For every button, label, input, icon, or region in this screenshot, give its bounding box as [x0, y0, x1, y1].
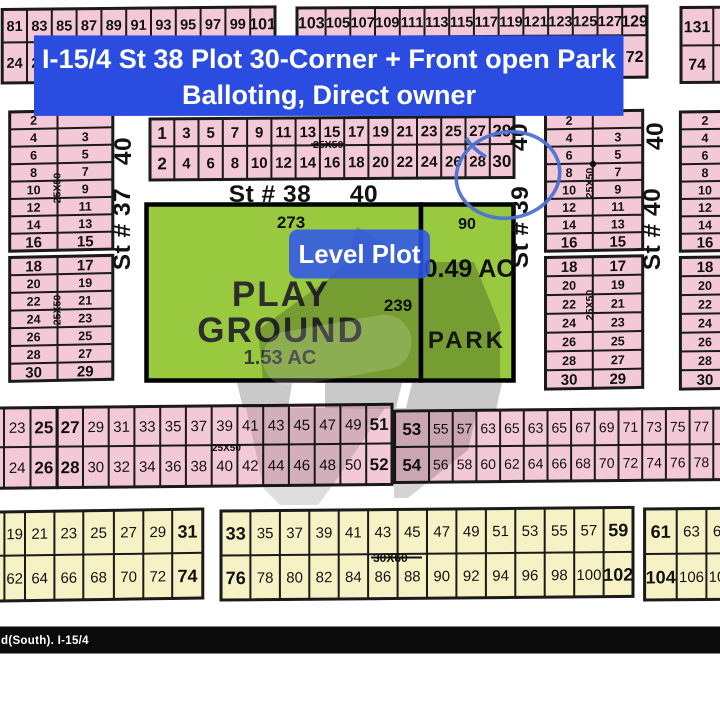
svg-text:4: 4	[566, 131, 573, 145]
svg-text:25X50: 25X50	[584, 290, 596, 321]
svg-text:35: 35	[257, 525, 274, 542]
svg-text:93: 93	[155, 18, 171, 34]
svg-text:31: 31	[113, 419, 130, 436]
svg-text:90: 90	[458, 216, 476, 233]
svg-text:22: 22	[396, 154, 413, 171]
svg-text:90: 90	[433, 568, 450, 585]
svg-text:20: 20	[698, 279, 712, 293]
svg-text:69: 69	[599, 419, 615, 435]
svg-text:39: 39	[216, 418, 233, 435]
svg-text:30: 30	[492, 152, 511, 171]
svg-text:d(South). I-15/4: d(South). I-15/4	[1, 635, 89, 647]
svg-text:24: 24	[7, 56, 23, 72]
svg-text:94: 94	[492, 568, 509, 585]
svg-text:20: 20	[562, 279, 576, 293]
svg-text:18: 18	[25, 258, 42, 275]
svg-text:65: 65	[504, 420, 520, 436]
svg-text:25: 25	[611, 334, 625, 348]
svg-text:77: 77	[694, 418, 710, 434]
svg-text:14: 14	[27, 218, 41, 232]
svg-text:53: 53	[522, 523, 539, 540]
svg-text:76: 76	[226, 568, 246, 588]
svg-text:22: 22	[562, 297, 576, 311]
svg-text:6: 6	[30, 148, 37, 162]
svg-text:19: 19	[6, 526, 23, 543]
svg-text:129: 129	[621, 13, 648, 30]
svg-text:115: 115	[450, 15, 473, 31]
svg-text:9: 9	[614, 182, 621, 196]
svg-text:26: 26	[27, 330, 41, 344]
svg-text:109: 109	[375, 15, 399, 31]
svg-text:38: 38	[190, 458, 207, 475]
svg-text:23: 23	[60, 525, 77, 542]
svg-text:29: 29	[87, 419, 104, 436]
svg-text:18: 18	[561, 259, 578, 276]
svg-text:8: 8	[566, 166, 573, 180]
svg-text:91: 91	[131, 18, 147, 34]
svg-text:63: 63	[528, 420, 544, 436]
svg-text:25: 25	[445, 123, 462, 140]
svg-text:131: 131	[684, 19, 711, 36]
svg-text:47: 47	[433, 524, 450, 541]
svg-text:21: 21	[78, 293, 92, 307]
svg-text:6: 6	[207, 155, 215, 172]
svg-text:25X50: 25X50	[52, 173, 64, 204]
svg-text:33: 33	[226, 523, 246, 543]
svg-text:28: 28	[27, 348, 41, 362]
svg-text:113: 113	[425, 15, 448, 31]
svg-text:73: 73	[646, 419, 662, 435]
svg-text:6: 6	[702, 149, 709, 163]
svg-text:85: 85	[56, 19, 72, 35]
svg-text:28: 28	[562, 354, 576, 368]
svg-text:19: 19	[611, 278, 625, 292]
svg-text:34: 34	[139, 459, 156, 476]
svg-text:15: 15	[77, 233, 94, 250]
svg-text:61: 61	[651, 522, 671, 542]
svg-text:25X50: 25X50	[584, 168, 596, 199]
svg-text:273: 273	[277, 213, 305, 232]
svg-text:19: 19	[372, 124, 389, 141]
svg-text:17: 17	[77, 257, 94, 274]
svg-text:25: 25	[34, 418, 53, 437]
svg-text:24: 24	[421, 154, 438, 171]
svg-text:17: 17	[609, 258, 626, 275]
svg-text:8: 8	[30, 166, 37, 180]
svg-text:6: 6	[566, 149, 573, 163]
svg-text:23: 23	[421, 123, 438, 140]
svg-text:66: 66	[60, 570, 77, 587]
svg-text:68: 68	[90, 569, 107, 586]
svg-text:30: 30	[561, 372, 578, 389]
svg-text:36: 36	[165, 458, 182, 475]
svg-text:22: 22	[698, 298, 712, 312]
svg-text:18: 18	[348, 154, 365, 171]
svg-text:30: 30	[25, 364, 42, 381]
svg-text:25: 25	[78, 329, 92, 343]
svg-text:98: 98	[551, 567, 568, 584]
svg-text:12: 12	[562, 201, 576, 215]
svg-text:65: 65	[713, 523, 720, 540]
svg-text:1: 1	[157, 124, 166, 143]
svg-text:29: 29	[609, 371, 626, 388]
svg-text:12: 12	[698, 201, 712, 215]
svg-text:23: 23	[78, 311, 92, 325]
svg-text:40: 40	[216, 458, 233, 475]
svg-text:40: 40	[506, 123, 533, 151]
svg-text:21: 21	[611, 297, 625, 311]
svg-text:24: 24	[27, 312, 41, 326]
svg-text:96: 96	[522, 567, 539, 584]
svg-text:123: 123	[548, 14, 572, 30]
svg-text:28: 28	[61, 458, 80, 477]
svg-text:28: 28	[698, 354, 712, 368]
svg-text:102: 102	[603, 565, 633, 585]
svg-text:30: 30	[87, 459, 104, 476]
svg-text:14: 14	[299, 155, 316, 172]
svg-text:Level Plot: Level Plot	[299, 239, 421, 269]
svg-text:St # 37: St # 37	[109, 188, 136, 271]
svg-text:4: 4	[702, 131, 709, 145]
svg-text:70: 70	[599, 455, 615, 471]
svg-text:84: 84	[345, 569, 362, 586]
svg-text:68: 68	[575, 455, 591, 471]
svg-text:25X50: 25X50	[212, 443, 241, 454]
svg-text:67: 67	[575, 419, 591, 435]
svg-text:105: 105	[326, 15, 350, 31]
svg-text:40: 40	[110, 137, 137, 165]
svg-text:4: 4	[182, 155, 191, 172]
svg-text:16: 16	[561, 234, 578, 251]
svg-text:21: 21	[396, 123, 413, 140]
svg-text:74: 74	[688, 57, 706, 74]
svg-text:13: 13	[611, 217, 625, 231]
svg-text:25X50: 25X50	[313, 139, 344, 151]
svg-text:75: 75	[670, 418, 686, 434]
svg-text:Balloting, Direct owner: Balloting, Direct owner	[182, 80, 477, 110]
svg-text:30: 30	[697, 372, 714, 389]
svg-text:2: 2	[157, 154, 166, 173]
svg-text:33: 33	[139, 419, 156, 436]
svg-text:14: 14	[698, 218, 712, 232]
svg-text:72: 72	[623, 455, 639, 471]
svg-text:26: 26	[562, 335, 576, 349]
svg-text:111: 111	[401, 15, 424, 31]
svg-text:58: 58	[457, 456, 473, 472]
svg-text:125: 125	[573, 14, 597, 30]
svg-text:80: 80	[286, 569, 303, 586]
svg-text:25X50: 25X50	[52, 295, 64, 326]
svg-text:22: 22	[27, 295, 41, 309]
svg-text:I-15/4 St 38 Plot 30-Corner +: I-15/4 St 38 Plot 30-Corner + Front open…	[42, 44, 617, 74]
svg-text:64: 64	[31, 570, 48, 587]
svg-text:45: 45	[404, 524, 421, 541]
svg-text:117: 117	[475, 15, 498, 31]
svg-text:5: 5	[614, 148, 621, 162]
svg-text:20: 20	[27, 277, 41, 291]
svg-text:103: 103	[298, 15, 325, 32]
svg-text:72: 72	[626, 49, 644, 66]
svg-text:86: 86	[375, 569, 392, 586]
svg-text:17: 17	[348, 124, 365, 141]
svg-text:72: 72	[149, 568, 166, 585]
svg-text:23: 23	[9, 420, 26, 437]
svg-text:49: 49	[463, 523, 480, 540]
svg-text:3: 3	[614, 130, 621, 144]
svg-text:27: 27	[611, 353, 625, 367]
svg-text:62: 62	[6, 570, 23, 587]
svg-text:26: 26	[698, 335, 712, 349]
svg-text:29: 29	[77, 363, 94, 380]
svg-text:31: 31	[177, 521, 197, 541]
svg-text:62: 62	[504, 456, 520, 472]
svg-text:92: 92	[463, 568, 480, 585]
svg-text:119: 119	[499, 15, 522, 31]
svg-text:63: 63	[683, 523, 700, 540]
svg-text:39: 39	[316, 525, 333, 542]
svg-text:2: 2	[702, 114, 709, 128]
svg-text:18: 18	[697, 259, 714, 276]
svg-text:66: 66	[552, 455, 568, 471]
svg-text:74: 74	[177, 566, 197, 586]
svg-text:20: 20	[372, 154, 389, 171]
svg-text:15: 15	[609, 233, 626, 250]
svg-text:89: 89	[106, 18, 122, 34]
svg-text:101: 101	[249, 16, 276, 33]
svg-text:95: 95	[180, 17, 196, 33]
svg-text:13: 13	[78, 217, 92, 231]
svg-text:4: 4	[30, 131, 37, 145]
svg-text:10: 10	[698, 183, 712, 197]
svg-text:121: 121	[524, 14, 548, 30]
svg-text:12: 12	[275, 155, 292, 172]
svg-text:St # 39: St # 39	[507, 186, 534, 269]
svg-text:7: 7	[82, 165, 89, 179]
svg-text:76: 76	[670, 454, 686, 470]
svg-text:8: 8	[231, 155, 239, 172]
svg-text:35: 35	[165, 418, 182, 435]
svg-text:23: 23	[611, 315, 625, 329]
svg-text:10: 10	[251, 155, 268, 172]
svg-text:65: 65	[552, 419, 568, 435]
svg-text:32: 32	[113, 459, 130, 476]
svg-text:78: 78	[257, 570, 274, 587]
svg-text:41: 41	[345, 524, 362, 541]
svg-text:27: 27	[120, 524, 137, 541]
svg-text:9: 9	[255, 124, 263, 141]
svg-text:99: 99	[230, 17, 246, 33]
svg-text:107: 107	[351, 15, 375, 31]
svg-text:127: 127	[598, 14, 622, 30]
svg-text:7: 7	[231, 125, 239, 142]
svg-text:43: 43	[375, 524, 392, 541]
svg-text:3: 3	[182, 125, 190, 142]
svg-text:37: 37	[190, 418, 207, 435]
svg-text:71: 71	[623, 419, 639, 435]
svg-text:14: 14	[562, 218, 576, 232]
svg-text:40: 40	[642, 122, 669, 150]
svg-text:5: 5	[82, 147, 89, 161]
svg-text:64: 64	[528, 455, 544, 471]
svg-text:29: 29	[149, 524, 166, 541]
svg-text:87: 87	[81, 18, 97, 34]
svg-text:11: 11	[611, 200, 624, 214]
svg-text:16: 16	[25, 234, 42, 251]
svg-text:27: 27	[61, 418, 80, 437]
svg-text:51: 51	[492, 523, 509, 540]
svg-text:St # 40: St # 40	[639, 188, 666, 271]
svg-text:16: 16	[697, 234, 714, 251]
svg-text:104: 104	[646, 567, 676, 587]
svg-text:10: 10	[562, 183, 576, 197]
svg-text:7: 7	[614, 165, 621, 179]
svg-text:9: 9	[82, 182, 89, 196]
svg-text:63: 63	[480, 420, 496, 436]
svg-text:83: 83	[31, 19, 47, 35]
svg-text:82: 82	[316, 569, 333, 586]
svg-text:42: 42	[242, 458, 259, 475]
svg-text:97: 97	[205, 17, 221, 33]
svg-text:55: 55	[551, 523, 568, 540]
svg-text:5: 5	[207, 125, 215, 142]
svg-text:74: 74	[646, 454, 662, 470]
svg-text:21: 21	[31, 526, 48, 543]
svg-text:100: 100	[576, 567, 601, 584]
svg-text:12: 12	[27, 201, 41, 215]
svg-text:70: 70	[120, 569, 137, 586]
svg-text:24: 24	[9, 460, 26, 477]
svg-text:24: 24	[698, 316, 712, 330]
svg-text:27: 27	[78, 347, 92, 361]
svg-text:59: 59	[608, 520, 628, 540]
svg-text:37: 37	[286, 525, 303, 542]
svg-text:11: 11	[79, 199, 92, 213]
svg-text:16: 16	[324, 154, 341, 171]
svg-text:81: 81	[7, 19, 23, 35]
svg-text:108: 108	[709, 569, 720, 586]
svg-text:57: 57	[581, 522, 598, 539]
svg-text:10: 10	[27, 183, 41, 197]
svg-text:52: 52	[370, 455, 389, 474]
svg-text:11: 11	[276, 124, 292, 141]
svg-text:88: 88	[404, 568, 421, 585]
svg-text:26: 26	[34, 458, 53, 477]
svg-text:3: 3	[82, 130, 89, 144]
svg-text:8: 8	[702, 166, 709, 180]
svg-text:25: 25	[90, 525, 107, 542]
svg-text:19: 19	[78, 276, 92, 290]
svg-text:106: 106	[679, 569, 704, 586]
svg-text:24: 24	[562, 316, 576, 330]
svg-text:78: 78	[694, 454, 710, 470]
svg-text:60: 60	[480, 456, 496, 472]
